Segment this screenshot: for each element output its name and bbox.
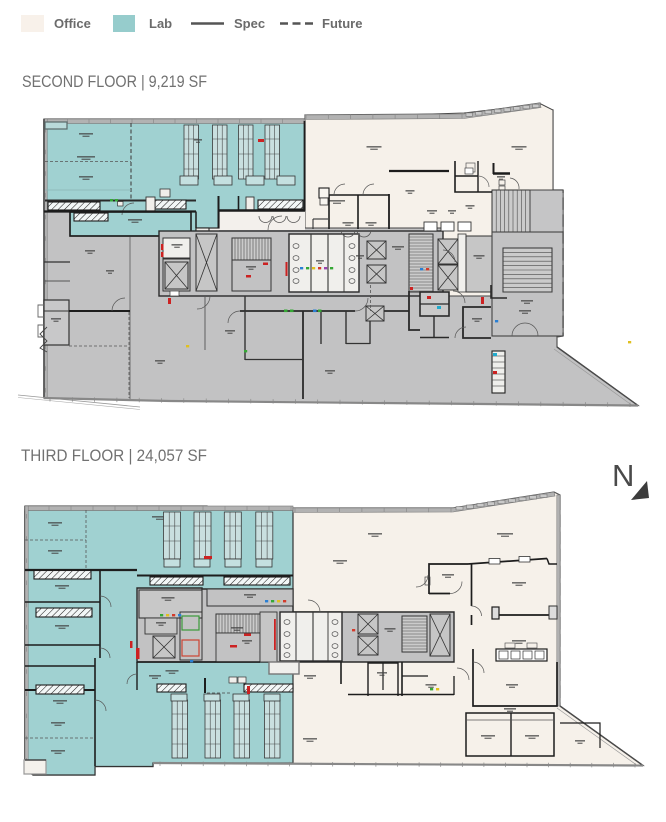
- svg-text:SECOND FLOOR | 9,219 SF: SECOND FLOOR | 9,219 SF: [22, 73, 207, 91]
- svg-text:Office: Office: [54, 16, 91, 31]
- svg-text:N: N: [612, 458, 634, 493]
- svg-text:THIRD FLOOR | 24,057 SF: THIRD FLOOR | 24,057 SF: [21, 447, 207, 465]
- svg-text:Lab: Lab: [149, 16, 172, 31]
- svg-text:Spec: Spec: [234, 16, 265, 31]
- svg-text:Future: Future: [322, 16, 362, 31]
